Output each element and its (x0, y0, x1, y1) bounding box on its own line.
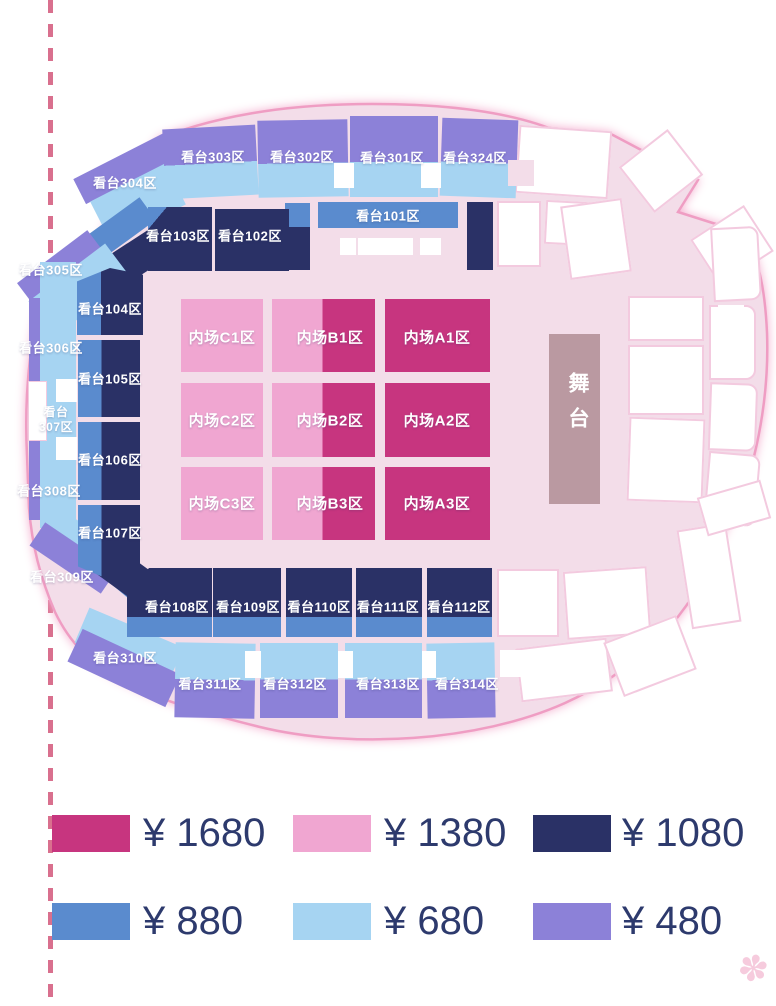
stand-307-label-line2: 307区 (39, 420, 73, 434)
venue-seat-map: 舞台 看台303区 看台302区 看台301区 看台324区 看台304区 看台… (0, 0, 776, 1006)
gate-gap (334, 163, 354, 188)
stand-110-label[interactable]: 看台110区 (288, 597, 351, 616)
legend-swatch-680 (293, 903, 371, 940)
section-stand-101-right-navy (467, 202, 493, 270)
unavailable-panel (628, 296, 704, 341)
stand-311-label[interactable]: 看台311区 (179, 674, 242, 693)
stand-309-label[interactable]: 看台309区 (30, 567, 94, 586)
gate-gap (422, 651, 436, 678)
stand-324-label[interactable]: 看台324区 (443, 148, 507, 167)
stand-302-label[interactable]: 看台302区 (270, 147, 334, 166)
stand-303-label[interactable]: 看台303区 (181, 147, 245, 166)
gate-gap (500, 650, 523, 677)
stand-111-label[interactable]: 看台111区 (357, 597, 419, 616)
inner-c3-label[interactable]: 内场C3区 (189, 493, 256, 514)
stand-312-label[interactable]: 看台312区 (263, 674, 327, 693)
gate-gap (508, 160, 534, 186)
gate-gap (421, 163, 441, 188)
stand-104-label[interactable]: 看台104区 (78, 299, 142, 318)
unavailable-tab (718, 305, 744, 317)
gate-gap (420, 238, 441, 255)
stand-313-label[interactable]: 看台313区 (356, 674, 420, 693)
stand-301-label[interactable]: 看台301区 (360, 148, 424, 167)
stand-101-label[interactable]: 看台101区 (356, 206, 420, 225)
stand-308-label[interactable]: 看台308区 (17, 481, 81, 500)
inner-b3-label[interactable]: 内场B3区 (297, 493, 364, 514)
inner-a3-label[interactable]: 内场A3区 (404, 493, 471, 514)
stand-102-label[interactable]: 看台102区 (218, 226, 282, 245)
stand-103-label[interactable]: 看台103区 (146, 226, 210, 245)
legend-price-880: ¥ 880 (143, 901, 243, 941)
stand-305-label[interactable]: 看台305区 (19, 260, 83, 279)
legend-price-480: ¥ 480 (622, 901, 722, 941)
legend-price-1080: ¥ 1080 (622, 813, 744, 853)
legend-swatch-1680 (52, 815, 130, 852)
inner-c1-label[interactable]: 内场C1区 (189, 327, 256, 348)
unavailable-panel (708, 382, 758, 452)
stand-112-label[interactable]: 看台112区 (428, 597, 491, 616)
stand-105-label[interactable]: 看台105区 (78, 369, 142, 388)
stand-109-label[interactable]: 看台109区 (216, 597, 280, 616)
unavailable-panel (497, 201, 541, 267)
legend-swatch-480 (533, 903, 611, 940)
inner-a2-label[interactable]: 内场A2区 (404, 410, 471, 431)
stand-307-label[interactable]: 看台307区 (39, 405, 73, 435)
legend-price-680: ¥ 680 (384, 901, 484, 941)
stand-307-label-line1: 看台 (43, 405, 68, 419)
legend-price-1680: ¥ 1680 (143, 813, 265, 853)
stand-304-label[interactable]: 看台304区 (93, 173, 157, 192)
legend-swatch-880 (52, 903, 130, 940)
legend-swatch-1380 (293, 815, 371, 852)
stand-108-label[interactable]: 看台108区 (145, 597, 209, 616)
stand-306-label[interactable]: 看台306区 (19, 338, 83, 357)
unavailable-panel (627, 417, 706, 504)
inner-c2-label[interactable]: 内场C2区 (189, 410, 256, 431)
inner-b2-label[interactable]: 内场B2区 (297, 410, 364, 431)
legend-swatch-1080 (533, 815, 611, 852)
stand-314-label[interactable]: 看台314区 (435, 674, 499, 693)
unavailable-panel (515, 638, 613, 703)
gate-gap (340, 238, 356, 255)
stand-107-label[interactable]: 看台107区 (78, 523, 142, 542)
gate-gap (358, 238, 413, 255)
gate-gap (338, 651, 353, 678)
inner-a1-label[interactable]: 内场A1区 (404, 327, 471, 348)
unavailable-panel (628, 345, 704, 415)
stand-310-label[interactable]: 看台310区 (93, 648, 157, 667)
unavailable-panel (497, 569, 559, 637)
unavailable-panel (560, 198, 632, 280)
inner-b1-label[interactable]: 内场B1区 (297, 327, 364, 348)
legend-price-1380: ¥ 1380 (384, 813, 506, 853)
stage-label: 舞台 (562, 372, 592, 442)
gate-gap (56, 379, 77, 402)
gate-gap (245, 651, 261, 678)
stand-106-label[interactable]: 看台106区 (78, 450, 142, 469)
unavailable-panel (710, 226, 762, 302)
gate-gap (56, 437, 77, 460)
